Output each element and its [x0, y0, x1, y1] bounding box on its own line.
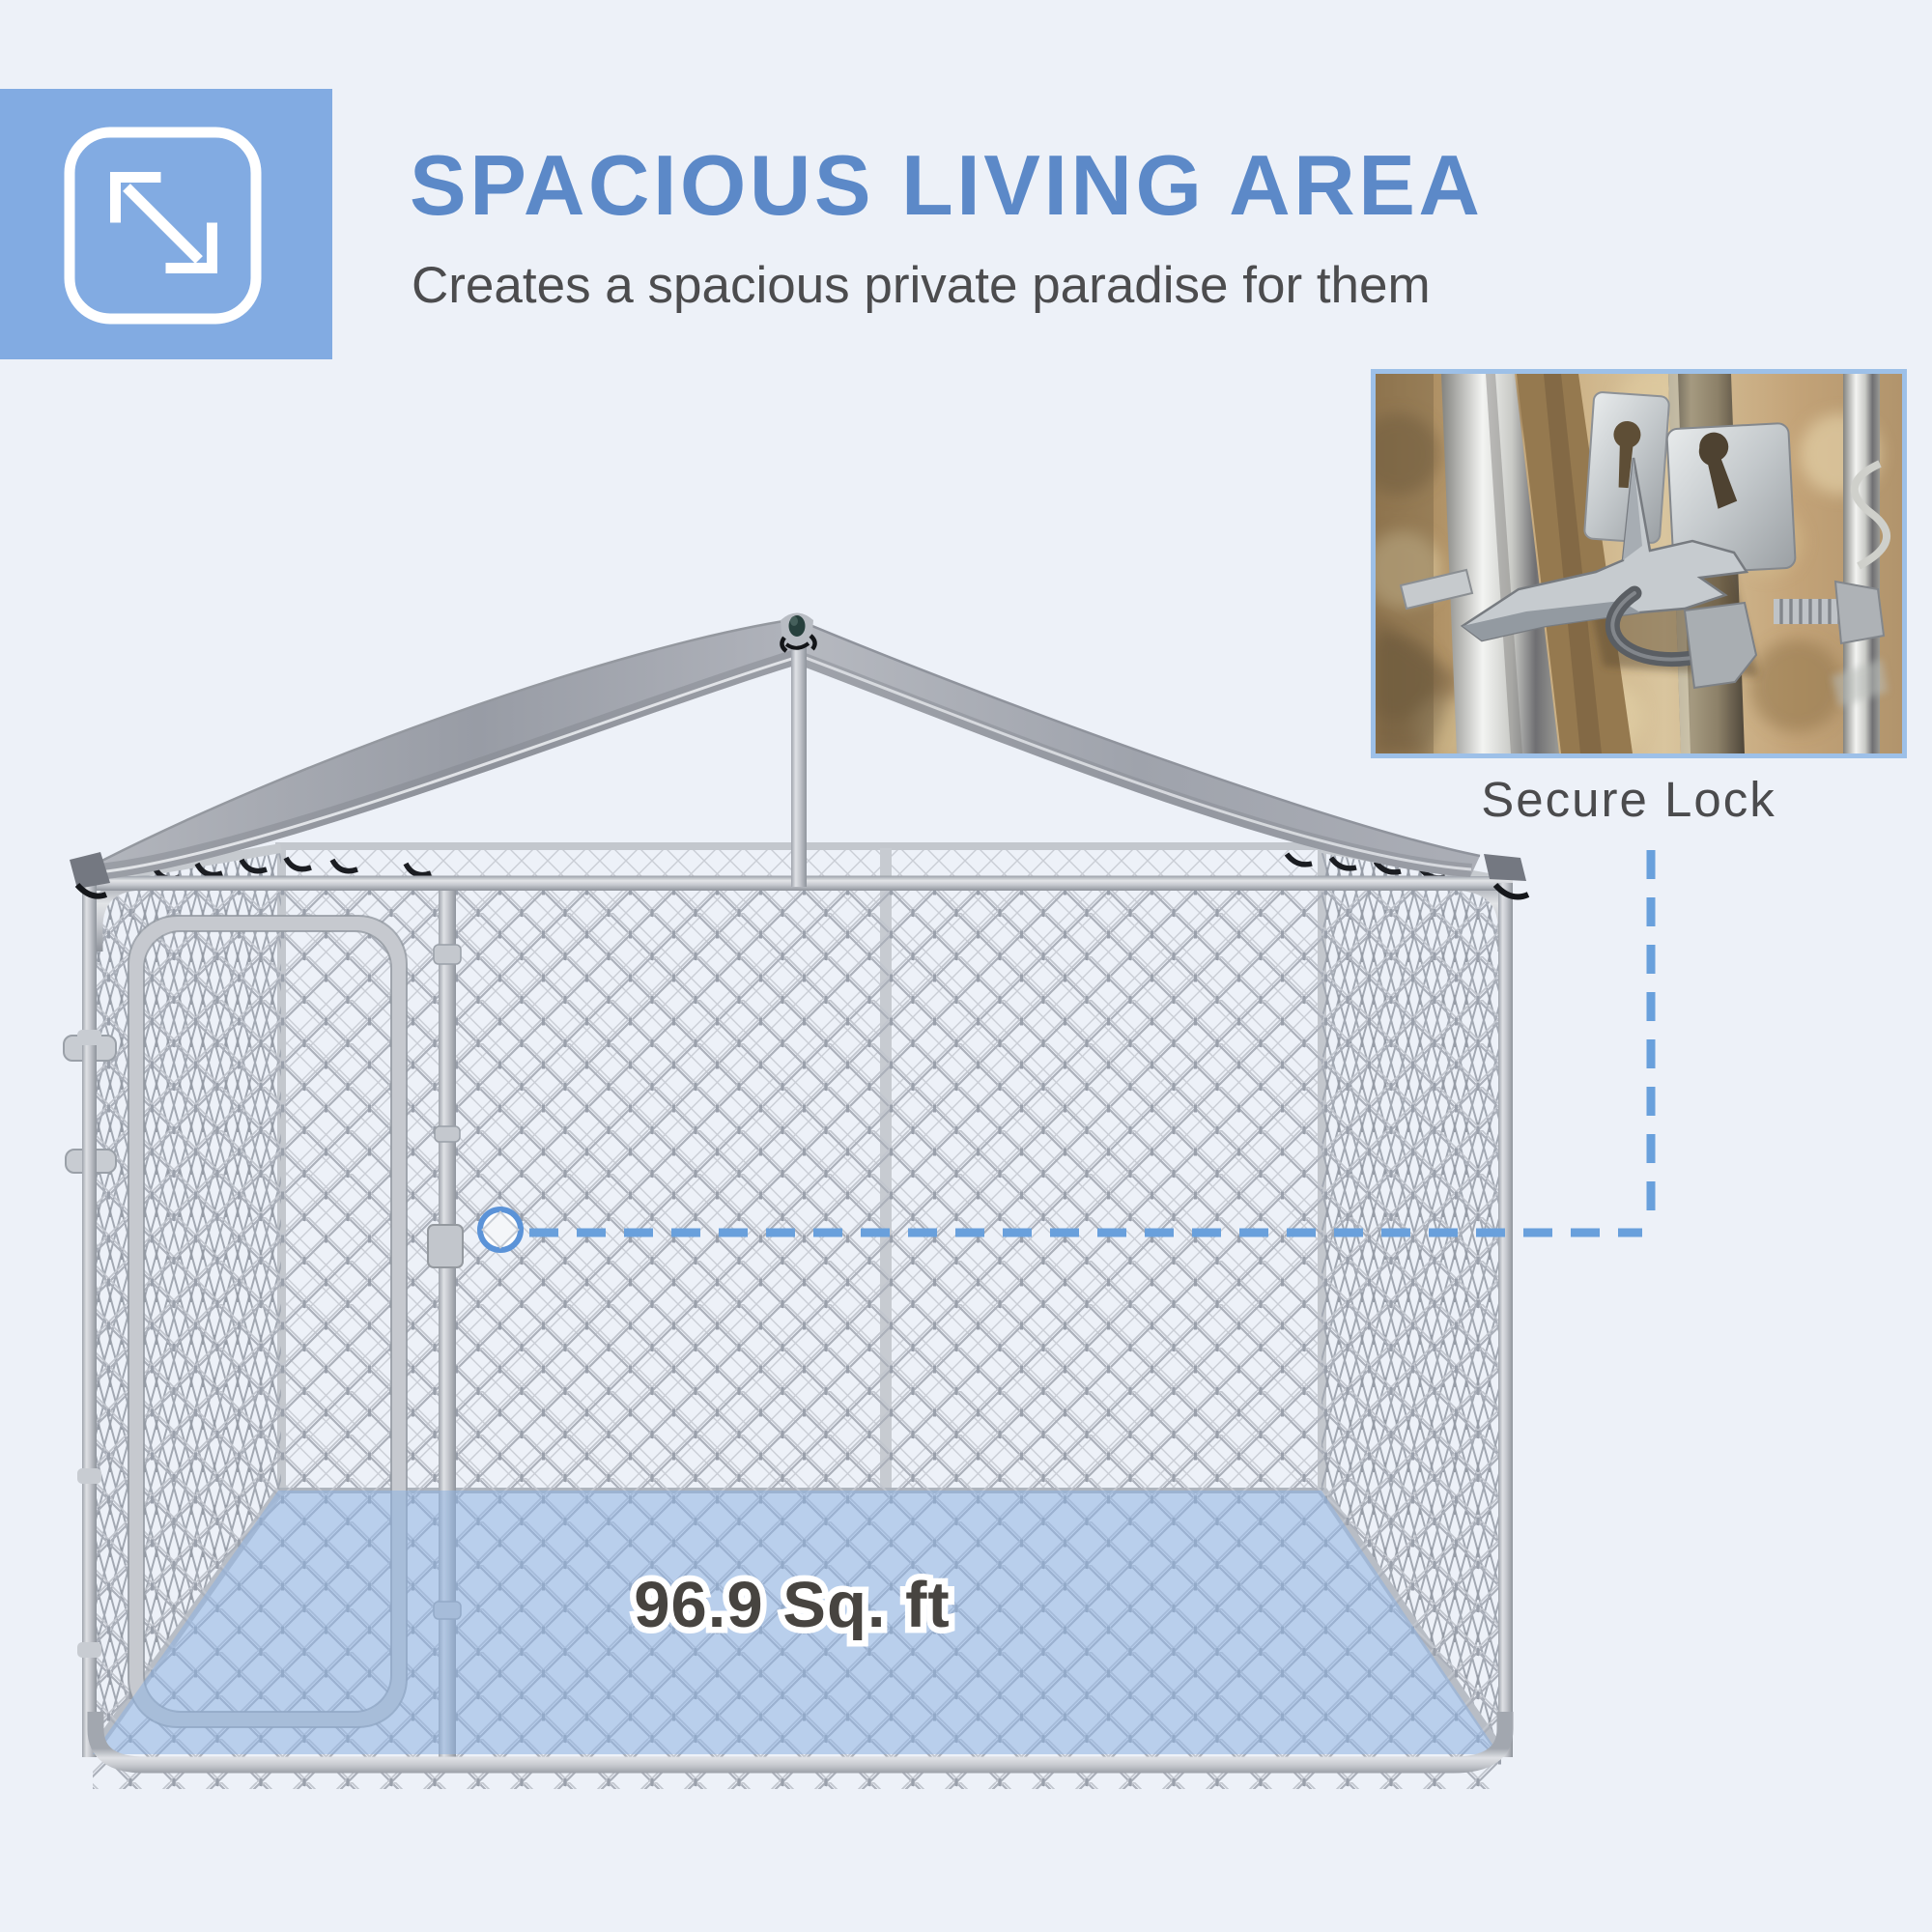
svg-text:96.9 Sq. ft: 96.9 Sq. ft: [634, 1569, 950, 1641]
svg-text:Secure Lock: Secure Lock: [1481, 772, 1776, 827]
svg-text:SPACIOUS LIVING AREA: SPACIOUS LIVING AREA: [410, 137, 1483, 233]
svg-text:Creates a spacious private par: Creates a spacious private paradise for …: [412, 257, 1431, 314]
